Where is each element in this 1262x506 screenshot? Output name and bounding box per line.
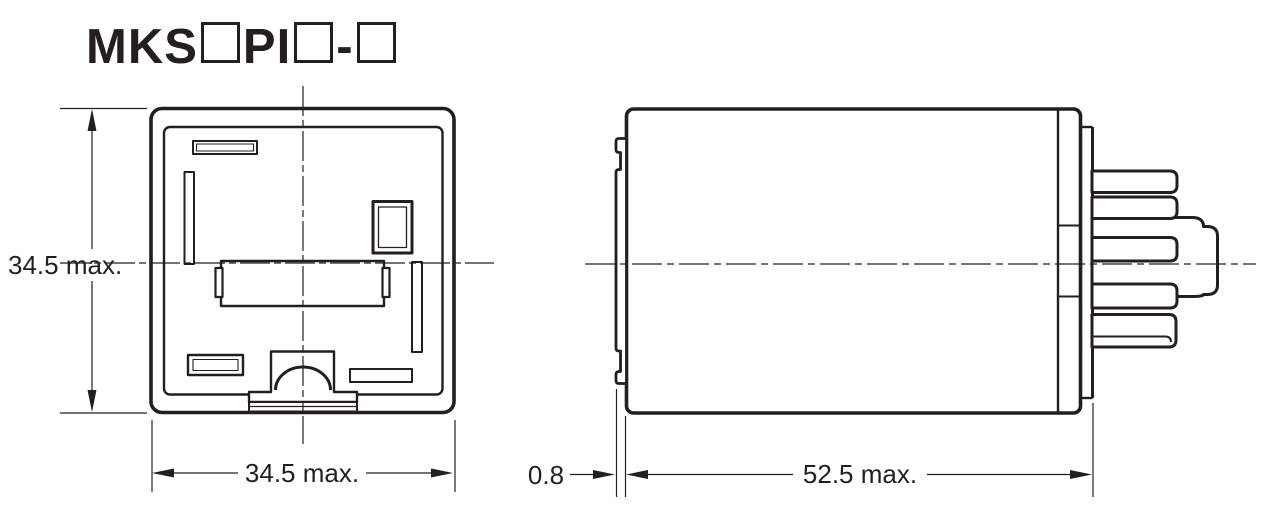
front-width-label: 34.5 max. — [245, 458, 359, 488]
flange-thickness-label: 0.8 — [528, 460, 564, 490]
side-front-flange — [616, 139, 627, 384]
front-view — [60, 86, 494, 414]
side-pin-2 — [1092, 197, 1177, 219]
side-case-body — [627, 109, 1081, 413]
front-height-arrow-down — [88, 390, 97, 412]
side-pin-4 — [1092, 284, 1177, 308]
front-nameplate-tab-left — [216, 268, 223, 297]
side-pin-5 — [1092, 315, 1176, 348]
technical-drawing-canvas: 34.5 max. 34.5 max. 0.8 52.5 max. — [0, 0, 1262, 506]
side-depth-label: 52.5 max. — [803, 459, 917, 489]
side-view — [585, 109, 1256, 413]
side-pin-1 — [1092, 171, 1177, 193]
side-depth-arrow-right — [1070, 470, 1092, 479]
front-nameplate-tab-right — [383, 268, 390, 297]
side-depth-arrow-left — [626, 470, 648, 479]
side-pin-3 — [1092, 238, 1177, 262]
front-width-arrow-right — [431, 469, 453, 478]
front-width-arrow-left — [152, 469, 174, 478]
front-bottom-left-slot — [188, 355, 243, 375]
flange-arrow-right — [593, 470, 615, 479]
front-height-label: 34.5 max. — [8, 250, 122, 280]
front-height-arrow-up — [88, 109, 97, 131]
relay-dimension-drawing: MKSPI- — [0, 0, 1262, 506]
